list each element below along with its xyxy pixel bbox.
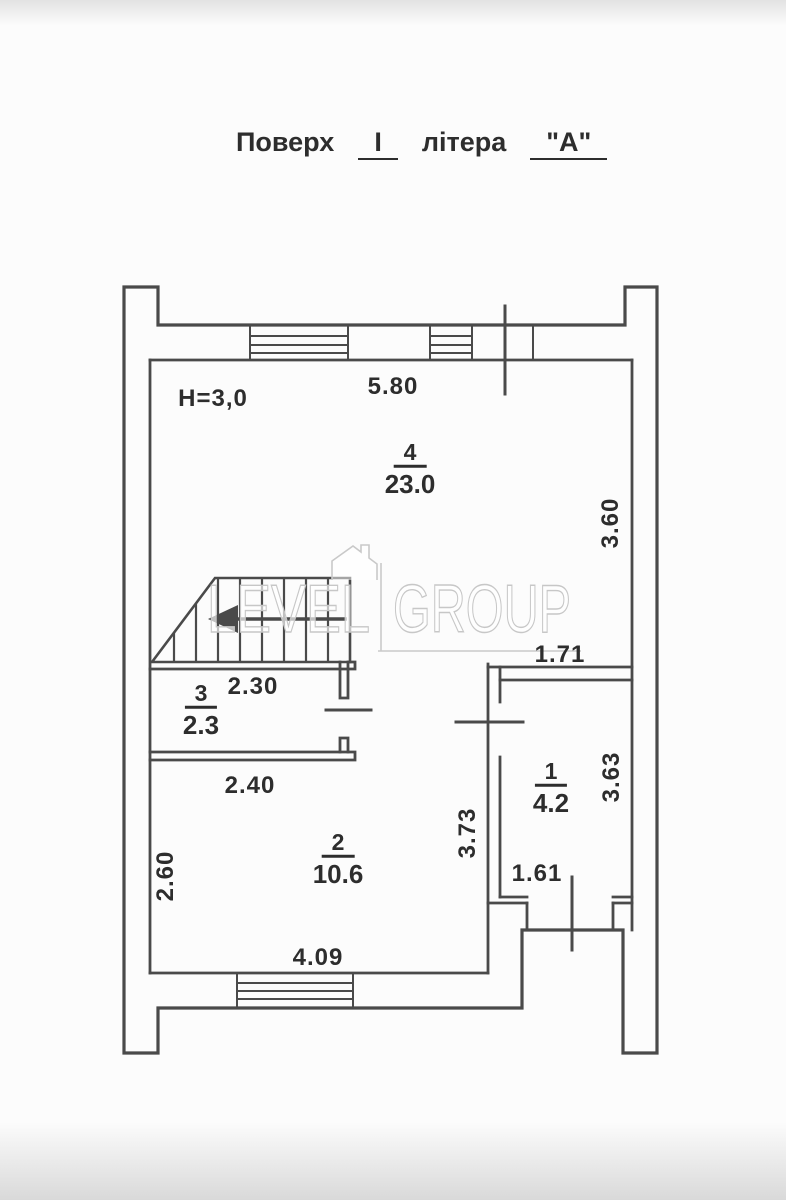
dim-room2-bottom: 4.09 [293,946,344,970]
room-label-1: 1 4.2 [533,759,569,819]
entrance-recess [527,903,613,930]
window-bottom [237,973,353,1008]
room3-bottom-wall [150,752,355,760]
dim-room2-right: 3.73 [456,808,480,859]
dim-room1-bottom: 1.61 [512,862,563,886]
dim-room2-left: 2.60 [154,851,178,902]
room-3-area: 2.3 [183,709,219,741]
ceiling-height-note: H=3,0 [178,387,248,411]
room-4-area: 23.0 [385,468,436,500]
dim-room1-right: 3.63 [600,752,624,803]
plan-sheet: Поверх І літера "А" [0,0,786,1200]
room-2-number: 2 [322,830,355,858]
dim-room3-width: 2.30 [228,675,279,699]
dim-top-width: 5.80 [368,375,419,399]
scanned-floor-plan-page: { "title": { "floor_label": "Поверх", "f… [0,0,786,1200]
watermark: LEVEL GROUP [207,545,581,651]
watermark-group-text: GROUP [393,571,571,647]
room-label-3: 3 2.3 [183,681,219,741]
window-top-left [250,325,348,360]
room1-bottom-wall [488,897,632,903]
window-top-right [430,325,472,360]
dim-room4-right: 3.60 [599,498,623,549]
floor-plan-drawing: LEVEL GROUP [0,0,786,1200]
room-4-number: 4 [394,440,427,468]
room-label-4: 4 23.0 [385,440,436,500]
dim-room1-top: 1.71 [535,643,586,667]
room-1-number: 1 [535,759,568,787]
room1-top-wall [488,667,632,680]
room-label-2: 2 10.6 [313,830,364,890]
watermark-level-text: LEVEL [207,571,370,647]
room-1-area: 4.2 [533,787,569,819]
room-3-number: 3 [185,681,218,709]
room-2-area: 10.6 [313,858,364,890]
dim-room2-top-width: 2.40 [225,774,276,798]
room3-right-wall [340,662,348,752]
